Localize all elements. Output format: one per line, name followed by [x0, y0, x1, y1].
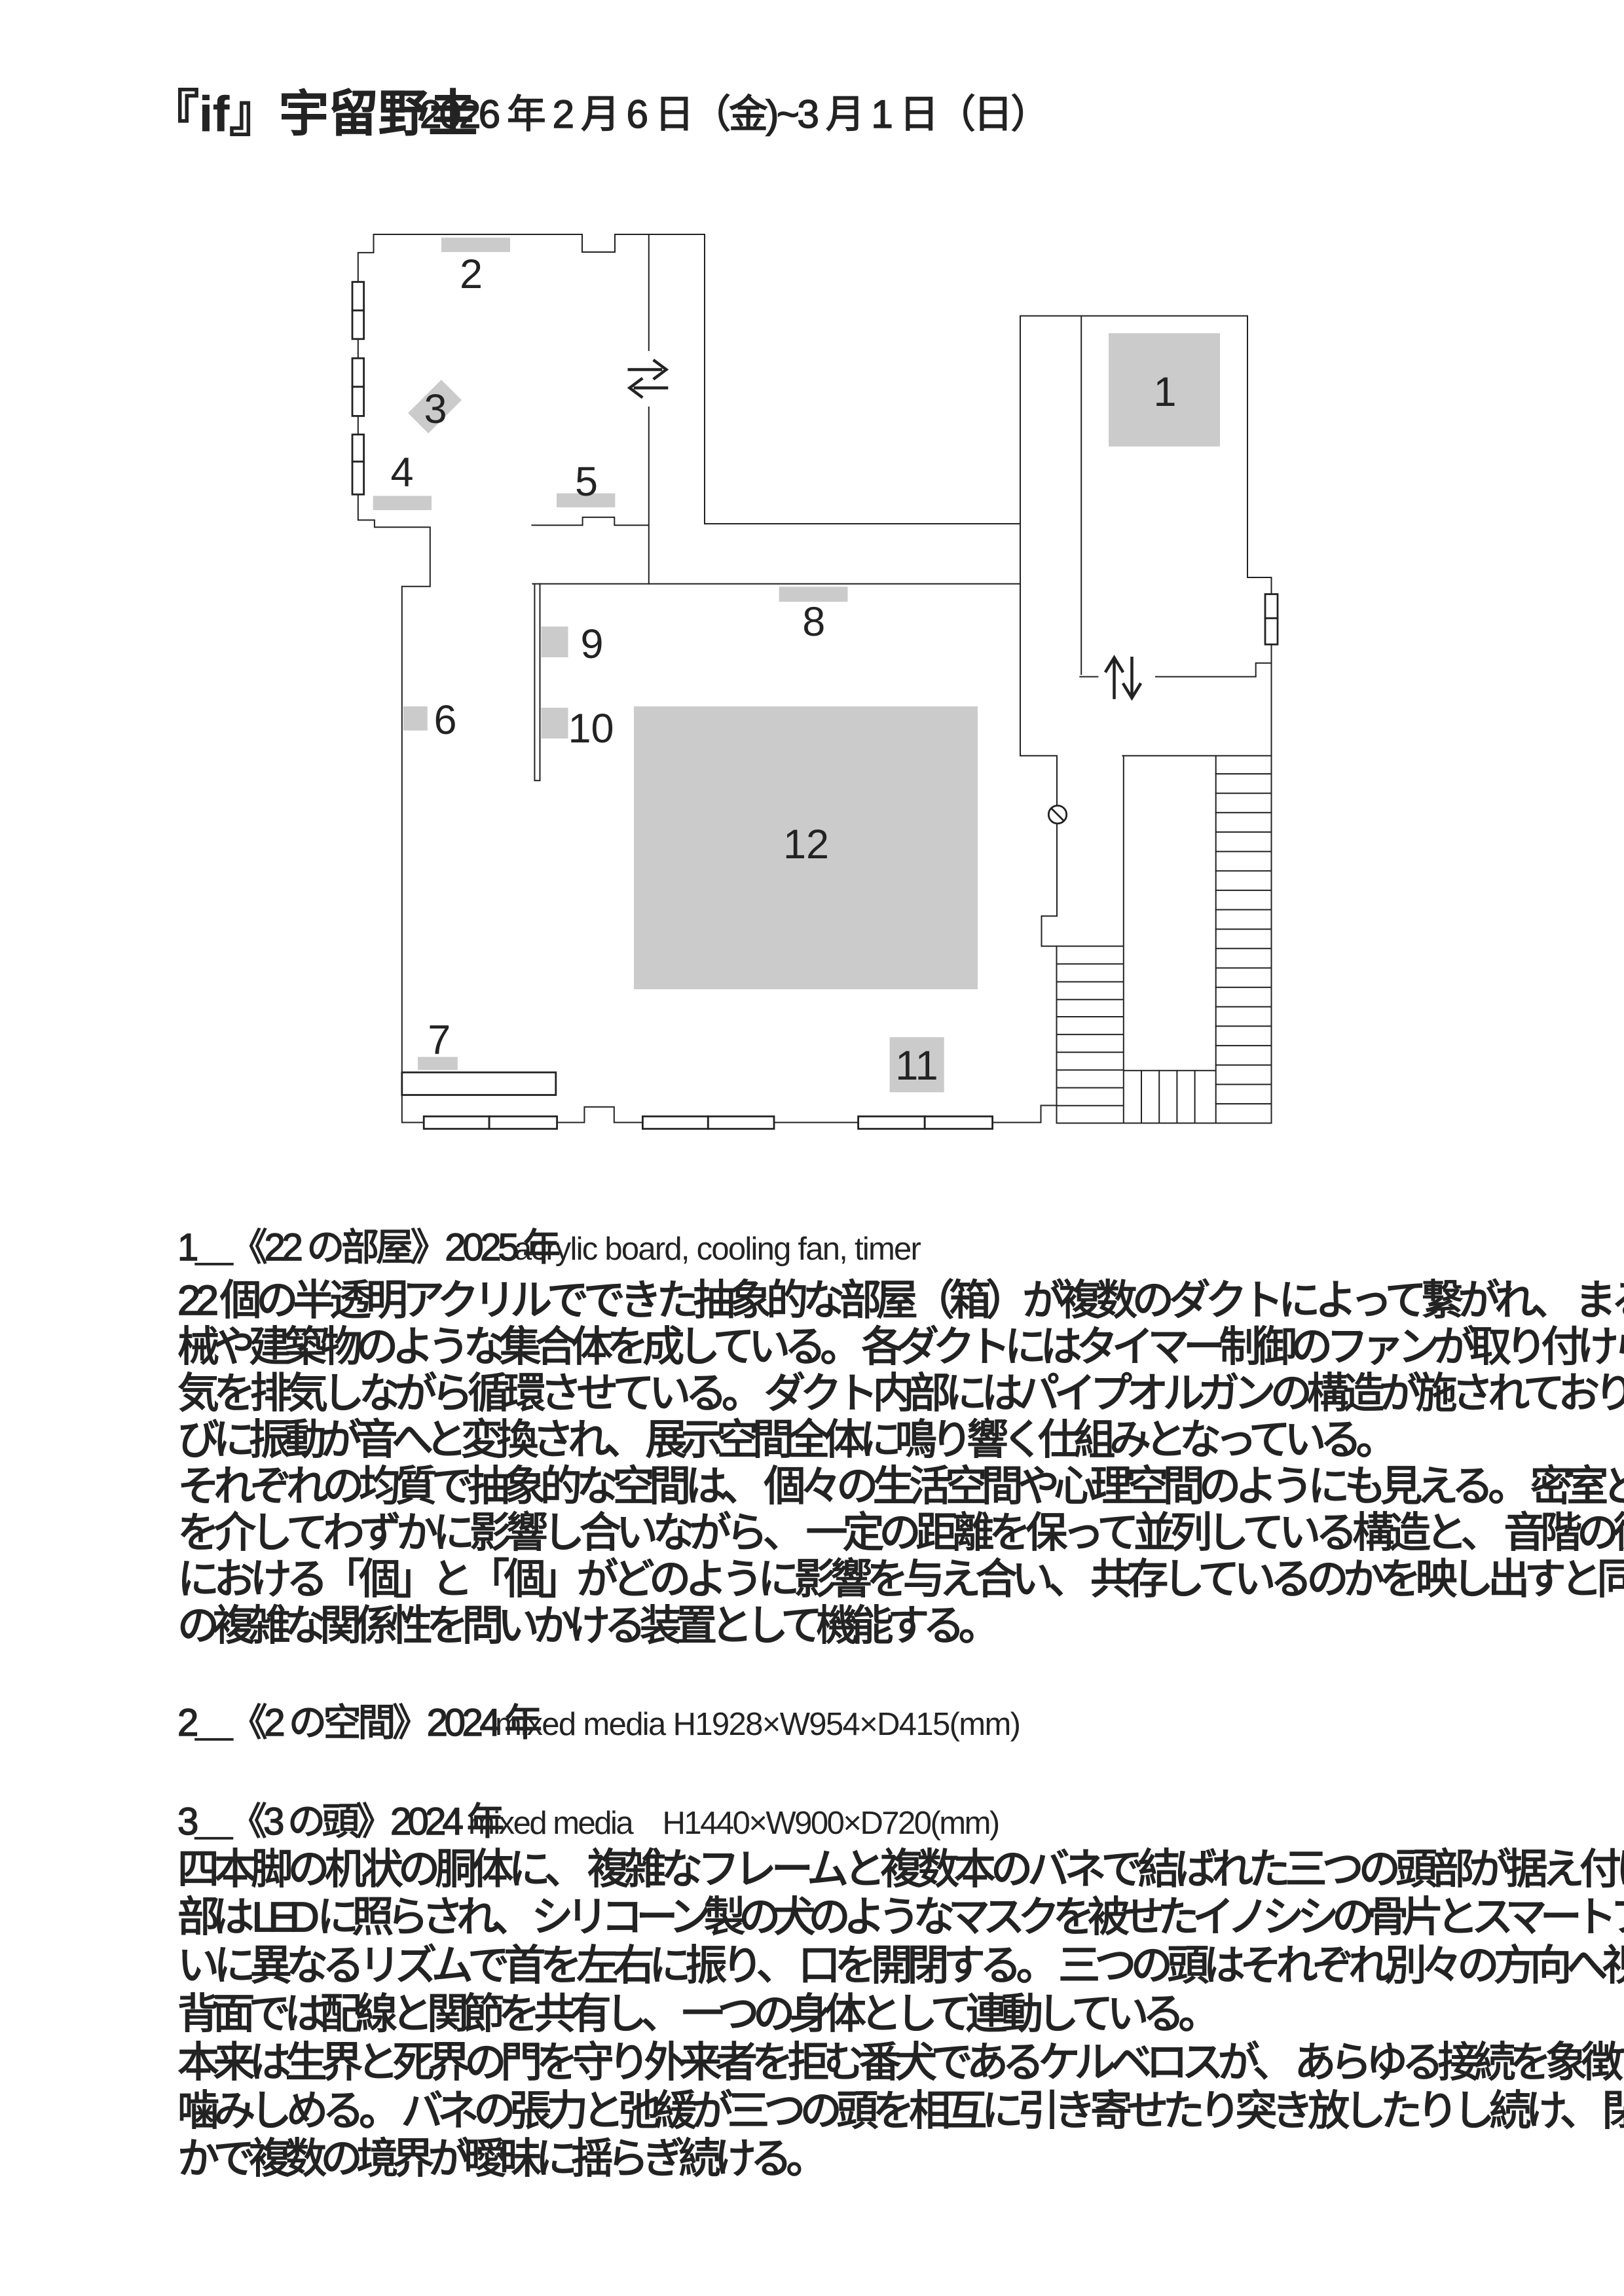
svg-text:8: 8 — [802, 599, 825, 645]
svg-text:9: 9 — [580, 621, 603, 667]
svg-text:6: 6 — [434, 697, 456, 743]
svg-text:11: 11 — [895, 1043, 938, 1089]
svg-text:5: 5 — [575, 459, 598, 505]
svg-text:7: 7 — [428, 1017, 451, 1063]
svg-text:10: 10 — [568, 706, 614, 752]
svg-text:1: 1 — [1153, 369, 1176, 415]
svg-text:12: 12 — [783, 822, 829, 867]
svg-text:3: 3 — [424, 386, 447, 432]
svg-text:4: 4 — [390, 450, 413, 496]
svg-text:2: 2 — [460, 251, 483, 297]
